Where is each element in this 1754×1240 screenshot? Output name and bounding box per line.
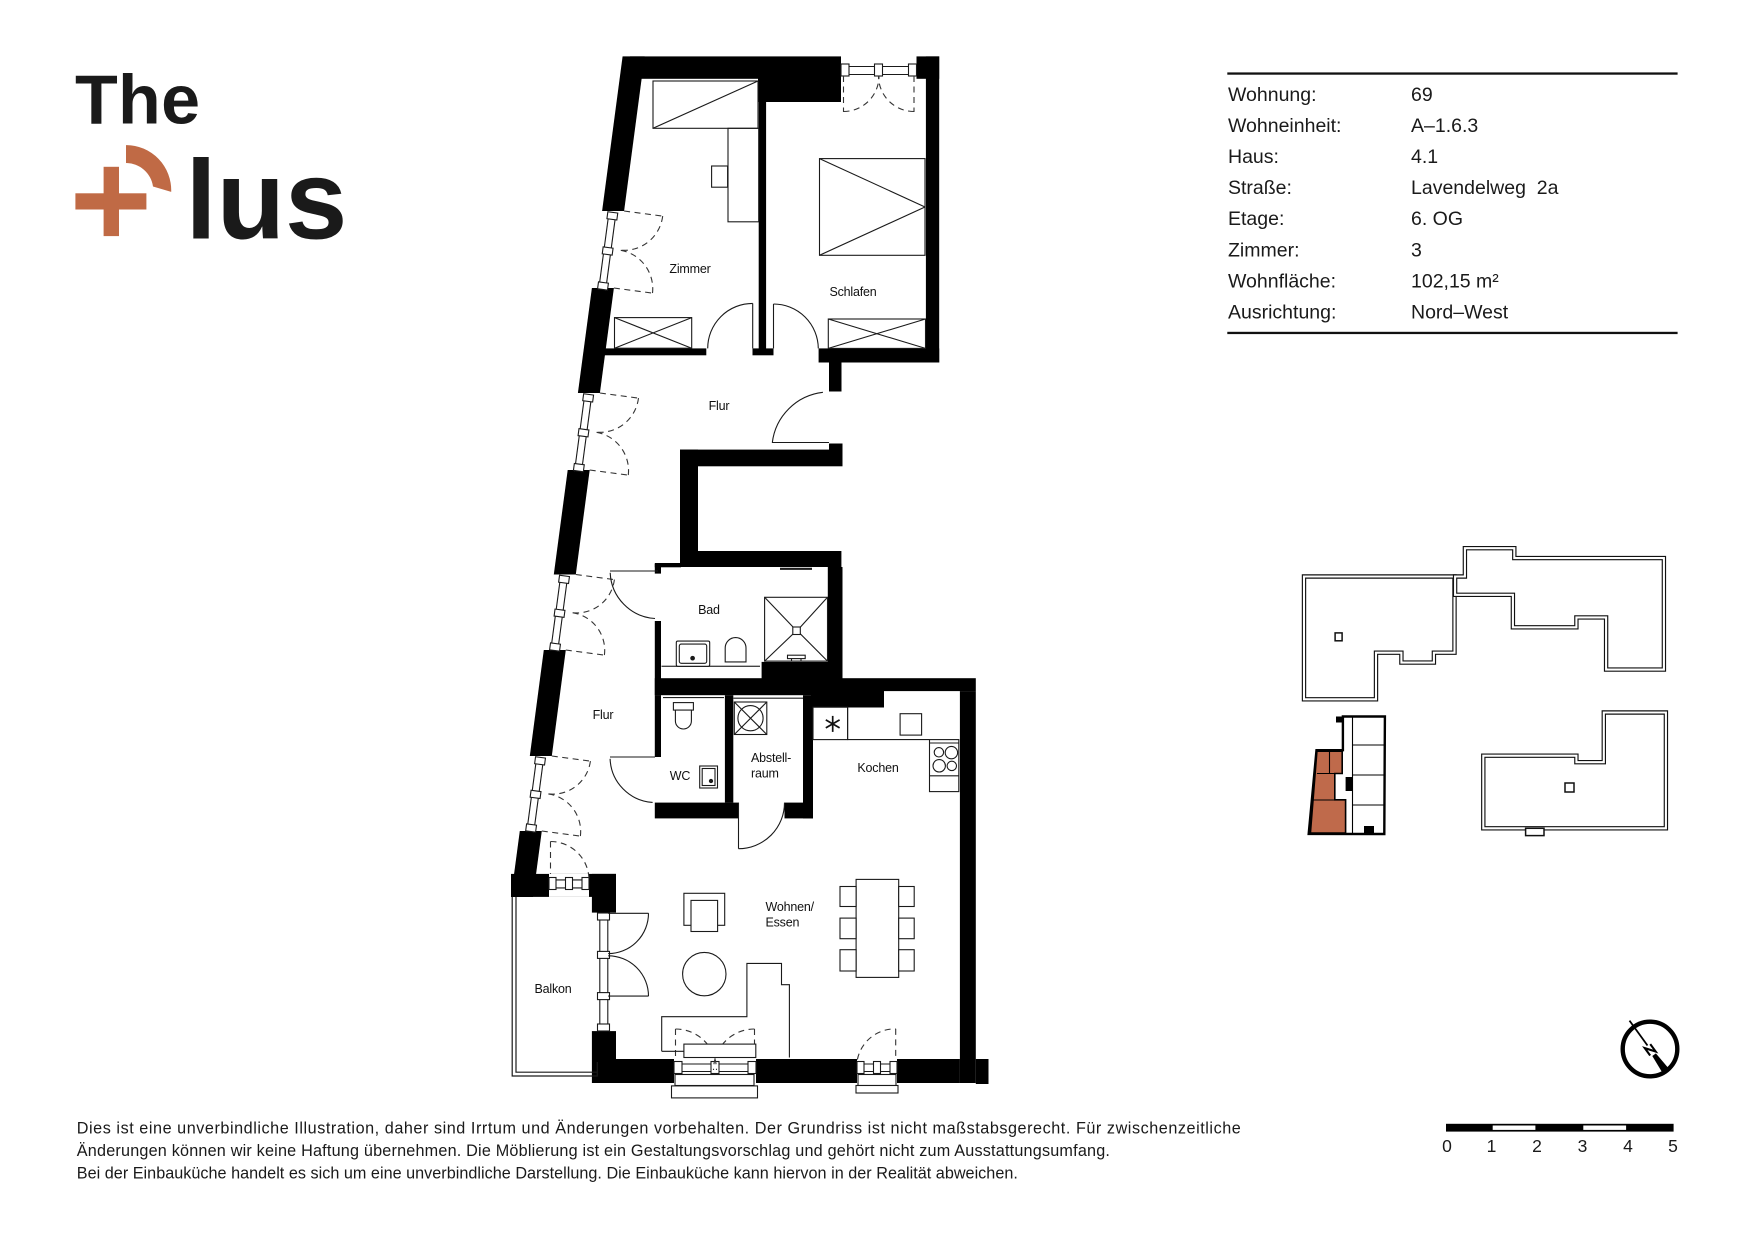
svg-text:Bad: Bad: [698, 603, 720, 617]
svg-text:Straße:: Straße:: [1228, 177, 1292, 199]
svg-text:Bei der Einbauküche handelt es: Bei der Einbauküche handelt es sich um e…: [77, 1164, 1018, 1182]
svg-text:Zimmer:: Zimmer:: [1228, 239, 1300, 261]
svg-text:5: 5: [1668, 1136, 1678, 1156]
svg-text:4.1: 4.1: [1411, 146, 1438, 168]
svg-text:Lavendelweg 2a: Lavendelweg 2a: [1411, 177, 1559, 199]
svg-text:lus: lus: [186, 138, 348, 263]
svg-text:Wohnung:: Wohnung:: [1228, 84, 1317, 106]
svg-text:Nord–West: Nord–West: [1411, 302, 1509, 324]
svg-text:Balkon: Balkon: [534, 982, 571, 996]
svg-text:Flur: Flur: [593, 708, 614, 722]
svg-text:Ausrichtung:: Ausrichtung:: [1228, 302, 1336, 324]
svg-text:3: 3: [1411, 239, 1422, 261]
svg-text:Essen: Essen: [766, 916, 800, 930]
svg-text:Änderungen können wir keine Ha: Änderungen können wir keine Haftung über…: [77, 1142, 1110, 1160]
svg-text:Flur: Flur: [709, 399, 730, 413]
svg-text:69: 69: [1411, 84, 1433, 106]
svg-text:2: 2: [1532, 1136, 1542, 1156]
svg-text:0: 0: [1442, 1136, 1452, 1156]
svg-text:3: 3: [1578, 1136, 1588, 1156]
svg-text:The: The: [75, 60, 200, 138]
svg-text:Wohneinheit:: Wohneinheit:: [1228, 115, 1341, 137]
svg-text:A–1.6.3: A–1.6.3: [1411, 115, 1478, 137]
svg-text:Kochen: Kochen: [857, 761, 898, 775]
svg-text:102,15 m²: 102,15 m²: [1411, 270, 1499, 292]
svg-text:WC: WC: [670, 769, 691, 783]
svg-text:1: 1: [1487, 1136, 1497, 1156]
svg-text:Wohnen/: Wohnen/: [766, 900, 815, 914]
svg-text:Haus:: Haus:: [1228, 146, 1279, 168]
svg-text:Wohnfläche:: Wohnfläche:: [1228, 270, 1336, 292]
svg-text:6. OG: 6. OG: [1411, 208, 1463, 230]
svg-text:Dies ist eine unverbindliche I: Dies ist eine unverbindliche Illustratio…: [77, 1120, 1242, 1138]
svg-text:Etage:: Etage:: [1228, 208, 1284, 230]
svg-text:4: 4: [1623, 1136, 1633, 1156]
svg-text:Schlafen: Schlafen: [829, 285, 876, 299]
svg-text:Zimmer: Zimmer: [669, 262, 710, 276]
svg-text:Abstell-: Abstell-: [751, 751, 791, 765]
svg-text:raum: raum: [751, 767, 779, 781]
